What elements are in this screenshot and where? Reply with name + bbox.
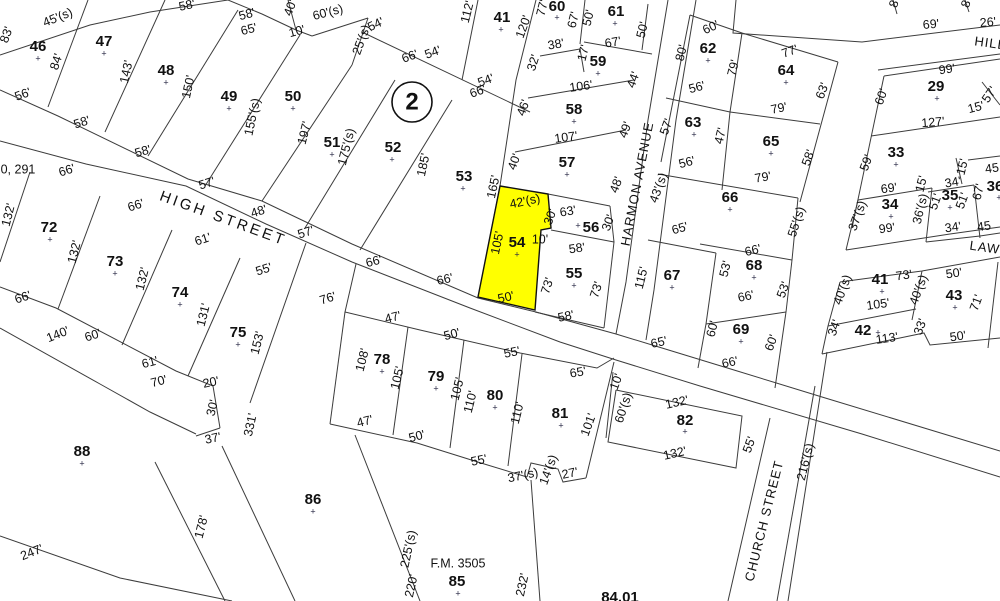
dimension-label: 56'	[687, 78, 706, 96]
lot-center-mark: +	[460, 183, 465, 193]
dimension-label: 132'	[65, 239, 84, 265]
dimension-label: 30'	[599, 213, 618, 233]
dimension-label: 34'	[944, 219, 962, 235]
dimension-label: 101'	[578, 411, 599, 438]
dimension-label: 55'	[254, 260, 274, 278]
dimension-label: 69'	[880, 180, 898, 196]
dimension-label: 47'	[355, 412, 374, 430]
dimension-label: 99'	[878, 220, 896, 236]
dimension-label: 56'	[677, 153, 696, 171]
dimension-label: 66'	[435, 271, 454, 288]
lot-center-mark: +	[783, 77, 788, 87]
dimension-label: 132'	[664, 393, 690, 412]
parcel-boundary-line	[222, 446, 295, 601]
lot-center-mark: +	[101, 48, 106, 58]
dimension-label: 50'	[945, 265, 963, 281]
dimension-label: 30'	[204, 398, 222, 417]
lot-center-mark: +	[751, 272, 756, 282]
dimension-label: 59'	[857, 153, 876, 173]
lot-center-mark: +	[669, 282, 674, 292]
dimension-label: 197'	[295, 120, 314, 146]
parcel-boundary-line	[548, 194, 610, 206]
dimension-label: 60'	[762, 333, 781, 353]
dimension-label: 40'	[281, 0, 300, 18]
dimension-label: 61'	[140, 353, 159, 371]
street-label-church-street: CHURCH STREET	[742, 459, 787, 583]
dimension-label: 45'(s)	[41, 5, 75, 30]
lot-center-mark: +	[875, 327, 880, 337]
dimension-label: 105'	[388, 365, 407, 391]
lot-center-mark: +	[952, 302, 957, 312]
dimension-label: 50'	[634, 20, 652, 39]
dimension-label: 58'	[799, 148, 818, 168]
dimension-label: 45	[984, 160, 1000, 176]
lot-center-mark: +	[571, 280, 576, 290]
dimension-label: 185'	[414, 152, 433, 178]
parcel-boundary-line	[777, 386, 815, 601]
dimension-label: 50'	[442, 325, 461, 343]
dimension-label: 247'	[18, 542, 45, 564]
dimension-label: 10'	[532, 232, 548, 246]
lot-center-mark: +	[226, 103, 231, 113]
dimension-label: 49'	[616, 120, 635, 140]
dimension-label: 8'	[886, 0, 902, 10]
dimension-label: 83'	[0, 25, 16, 45]
dimension-label: 132'	[0, 202, 18, 228]
dimension-label: 54'	[423, 43, 443, 62]
lot-center-mark: +	[893, 159, 898, 169]
dimension-label: 34'	[825, 318, 844, 338]
dimension-label: 66'	[736, 288, 755, 305]
dimension-label: 79'	[725, 58, 743, 77]
dimension-label: 53'	[717, 259, 735, 278]
dimension-label: 69'	[922, 17, 939, 32]
dimension-label: 150'	[179, 74, 198, 100]
lot-center-mark: +	[112, 268, 117, 278]
dimension-label: 80'	[673, 43, 691, 62]
dimension-label: 48'	[607, 175, 626, 195]
dimension-label: 66'	[400, 47, 420, 66]
lot-center-mark: +	[389, 154, 394, 164]
lot-center-mark: +	[310, 506, 315, 516]
lot-center-mark: +	[379, 366, 384, 376]
dimension-label: 53'	[774, 280, 793, 300]
dimension-label: 66'	[13, 288, 33, 306]
dimension-label: 50'	[949, 328, 967, 344]
dimension-label: 58'	[568, 240, 586, 256]
lot-center-mark: +	[35, 53, 40, 63]
dimension-label: 15'	[913, 174, 931, 193]
dimension-label: 76'	[318, 289, 338, 307]
lot-number-84.01: 84.01	[601, 589, 639, 601]
tax-map-canvas: 45'(s)83'84'56'58'58'66'57'143'150'155'(…	[0, 0, 1000, 601]
dimension-label: 60'(s)	[311, 2, 344, 24]
dimension-label: 26'	[979, 15, 996, 30]
lot-center-mark: +	[996, 192, 1000, 202]
lot-center-mark: +	[290, 103, 295, 113]
lot-center-mark: +	[682, 426, 687, 436]
dimension-label: 153'	[248, 330, 267, 356]
dimension-label: 107'	[553, 129, 578, 146]
dimension-label: 47'	[383, 308, 402, 326]
dimension-label: 232'	[513, 572, 532, 598]
dimension-label: 63'	[813, 81, 832, 101]
dimension-label: 55'(s)	[785, 205, 808, 239]
parcel-boundary-line	[330, 312, 345, 424]
dimension-label: 79'	[754, 169, 772, 186]
dimension-label: 65'	[649, 334, 668, 351]
dimension-label: 57'	[657, 117, 676, 137]
lot-center-mark: +	[612, 18, 617, 28]
dimension-label: 66'	[720, 354, 739, 371]
dimension-label: 67'	[565, 10, 583, 29]
parcel-boundary-line	[968, 156, 1000, 160]
dimension-label: 57'	[197, 174, 217, 192]
dimension-label: 225'(s)	[398, 529, 420, 569]
dimension-label: 14'(s)	[536, 453, 560, 487]
dimension-label: 108'	[353, 347, 372, 373]
parcel-boundary-line	[362, 32, 530, 112]
dimension-label: 216'(s)	[794, 442, 817, 482]
dimension-label: 143'	[117, 59, 136, 85]
dimension-label: 38'	[547, 36, 565, 53]
parcel-boundary-line	[822, 333, 1000, 354]
dimension-label: 70'	[149, 372, 168, 390]
dimension-label: 8'	[958, 0, 974, 10]
lot-center-mark: +	[768, 148, 773, 158]
lot-center-mark: +	[879, 286, 884, 296]
dimension-label: 60'	[872, 87, 891, 107]
parcel-boundary-line	[330, 424, 527, 477]
lot-center-mark: +	[564, 169, 569, 179]
dimension-label: 120'	[513, 13, 534, 40]
map-annotation: F.M. 3505	[431, 556, 486, 570]
dimension-label: 20'	[201, 374, 220, 391]
dimension-label: 67'	[970, 182, 988, 201]
dimension-label: 37'	[203, 430, 222, 447]
dimension-label: 40'	[505, 152, 524, 172]
parcel-boundary-line	[666, 98, 730, 112]
dimension-label: 50'	[407, 427, 426, 445]
dimension-label: 15'	[954, 157, 972, 176]
dimension-label: 37'(s)	[845, 199, 869, 233]
lot-center-mark: +	[177, 299, 182, 309]
dimension-label: 132'	[133, 266, 152, 292]
dimension-label: 10'	[607, 372, 626, 392]
parcel-boundary-line	[360, 100, 452, 250]
lot-center-mark: +	[498, 24, 503, 34]
dimension-label: 57'	[296, 223, 316, 241]
dimension-label: 73'	[587, 280, 605, 300]
dimension-label: 66'	[126, 196, 146, 214]
dimension-label: 65'	[569, 364, 587, 381]
dimension-label: 99'	[938, 61, 956, 77]
dimension-label: 65'	[239, 20, 258, 38]
street-label-hill-street: HILL	[974, 33, 1000, 52]
lot-center-mark: +	[79, 458, 84, 468]
parcel-boundary-line	[775, 312, 786, 388]
dimension-label: 60'	[704, 319, 722, 338]
lot-center-mark: +	[554, 12, 559, 22]
dimension-label: 79'	[769, 100, 788, 117]
lot-center-mark: +	[705, 55, 710, 65]
lot-center-mark: +	[595, 68, 600, 78]
dimension-label: 55'	[502, 344, 521, 361]
dimension-label: 55'	[740, 435, 759, 455]
dimension-label: 40'(s)	[830, 273, 854, 307]
section-number: 2	[405, 88, 418, 115]
dimension-label: 45	[976, 218, 992, 234]
parcel-boundary-line	[648, 240, 716, 253]
dimension-label: 73'	[538, 276, 556, 296]
dimension-label: 132'	[662, 444, 688, 463]
lot-center-mark: +	[47, 234, 52, 244]
parcel-boundary-line	[604, 242, 614, 328]
dimension-label: 110'	[508, 400, 527, 425]
dimension-label: 55'	[469, 452, 488, 469]
dimension-label: 50'	[580, 8, 598, 27]
street-label-high-street: HIGH STREET	[157, 188, 289, 250]
dimension-label: 63'	[559, 203, 577, 220]
lot-center-mark: +	[691, 129, 696, 139]
lot-center-mark: +	[455, 588, 460, 598]
dimension-label: 71'	[967, 293, 986, 313]
dimension-label: 178'	[192, 514, 211, 540]
dimension-label: 65'	[670, 219, 690, 237]
lot-center-mark: +	[888, 211, 893, 221]
dimension-label: 131'	[194, 302, 213, 328]
lot-center-mark: +	[514, 249, 519, 259]
dimension-label: 61'	[193, 230, 213, 248]
dimension-label: 54'	[476, 71, 496, 90]
parcel-boundary-line	[722, 112, 730, 190]
parcel-boundary-line	[531, 480, 540, 601]
dimension-label: 127'	[921, 114, 945, 130]
lot-center-mark: +	[329, 149, 334, 159]
dimension-label: 46'	[514, 98, 533, 118]
dimension-label: 66'	[57, 161, 77, 179]
dimension-label: 48'	[249, 202, 269, 220]
dimension-label: 44'	[624, 70, 643, 90]
parcel-map-svg: 45'(s)83'84'56'58'58'66'57'143'150'155'(…	[0, 0, 1000, 601]
dimension-label: 33'	[911, 317, 930, 337]
dimension-label: 66'	[364, 252, 383, 270]
map-annotation: 0, 291	[1, 162, 36, 176]
dimension-label: 58'	[177, 0, 196, 14]
dimension-label: 58'	[133, 142, 153, 160]
dimension-label: 15'	[966, 98, 985, 116]
dimension-label: 60'	[83, 326, 103, 344]
dimension-label: 37'(s)	[506, 465, 539, 485]
dimension-label: 32'	[524, 53, 542, 73]
dimension-label: 115'	[632, 265, 651, 290]
lot-center-mark: +	[738, 336, 743, 346]
street-label-lawr-street: LAWR	[969, 238, 1000, 259]
dimension-label: 25'(s)	[349, 23, 373, 57]
parcel-boundary-line	[155, 462, 225, 601]
lot-center-mark: +	[934, 93, 939, 103]
dimension-label: 106'	[568, 78, 593, 95]
lot-center-mark: +	[558, 420, 563, 430]
dimension-label: 58'	[72, 113, 92, 131]
parcel-boundary-line	[988, 262, 998, 348]
lot-center-mark: +	[727, 204, 732, 214]
dimension-label: 43'(s)	[646, 171, 670, 205]
dimension-label: 10'	[287, 22, 306, 40]
lot-center-mark: +	[571, 116, 576, 126]
lot-number-42: 42	[855, 322, 872, 339]
dimension-label: 110'	[461, 389, 480, 414]
dimension-label: 56'	[13, 85, 33, 104]
dimension-label: 140'	[44, 324, 71, 346]
lot-number-56: 56	[583, 219, 600, 236]
dimension-label: 155'(s)	[242, 97, 264, 137]
lot-center-mark: +	[947, 202, 952, 212]
lot-center-mark: +	[433, 383, 438, 393]
dimension-label: 36'(s)	[910, 192, 931, 225]
lot-center-mark: +	[235, 339, 240, 349]
lot-center-mark: +	[163, 77, 168, 87]
lot-center-mark: +	[492, 402, 497, 412]
dimension-label: 105'	[865, 296, 890, 313]
dimension-label: 67'	[604, 34, 622, 51]
dimension-label: 60'	[700, 18, 721, 38]
dimension-label: 73'	[895, 267, 913, 283]
parcel-boundary-line	[706, 253, 716, 324]
parcel-boundary-line	[661, 15, 690, 162]
lot-center-mark: +	[575, 220, 580, 230]
dimension-label: 331'	[241, 412, 260, 438]
